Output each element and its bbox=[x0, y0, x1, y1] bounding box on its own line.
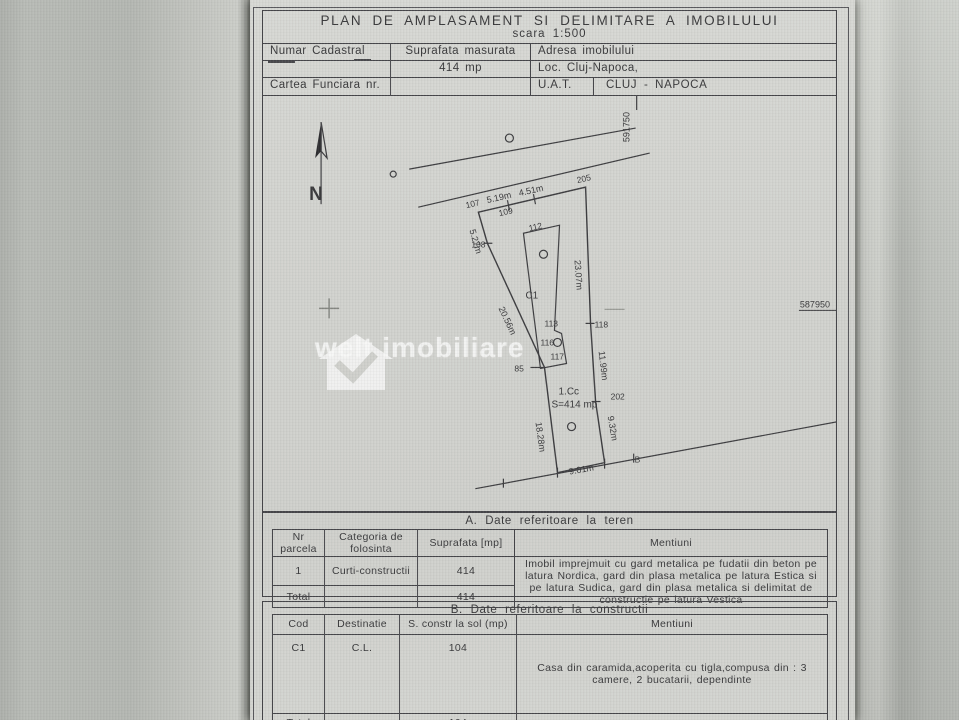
uat-value: CLUJ - NAPOCA bbox=[594, 78, 707, 95]
title-block: PLAN DE AMPLASAMENT SI DELIMITARE A IMOB… bbox=[262, 10, 837, 44]
svg-text:B: B bbox=[635, 455, 641, 465]
svg-text:116: 116 bbox=[540, 337, 554, 347]
svg-text:5.27m: 5.27m bbox=[467, 228, 484, 255]
north-label: N bbox=[309, 184, 323, 205]
uat-cell: U.A.T. CLUJ - NAPOCA bbox=[531, 78, 836, 95]
svg-text:109: 109 bbox=[498, 205, 514, 218]
cartea-funciara-label: Cartea Funciara nr. bbox=[263, 78, 391, 95]
svg-text:11.99m: 11.99m bbox=[597, 350, 611, 380]
cell-empty bbox=[517, 714, 828, 720]
svg-text:107: 107 bbox=[465, 197, 481, 210]
col-header: Destinatie bbox=[325, 615, 400, 635]
cartea-funciara-value bbox=[391, 78, 531, 95]
col-header: Nr parcela bbox=[273, 530, 325, 557]
svg-text:20.56m: 20.56m bbox=[497, 305, 519, 336]
survey-point-icon bbox=[568, 423, 576, 431]
col-header: Suprafata [mp] bbox=[418, 530, 515, 557]
col-header: Cod bbox=[273, 615, 325, 635]
info-table: Numar Cadastral Suprafata masurata Adres… bbox=[262, 43, 837, 96]
utility-point-icon bbox=[390, 171, 396, 177]
table-a-section: A. Date referitoare la teren Nr parcela … bbox=[262, 512, 837, 597]
photo-background-left bbox=[0, 0, 250, 720]
suprafata-label: Suprafata masurata bbox=[391, 44, 531, 61]
col-header: Mentiuni bbox=[515, 530, 828, 557]
scale-label: scara 1:500 bbox=[263, 28, 836, 40]
svg-text:112: 112 bbox=[528, 220, 544, 233]
table-b-section: B. Date referitoare la constructii Cod D… bbox=[262, 601, 837, 720]
road-line-bottom bbox=[475, 418, 836, 489]
svg-text:113: 113 bbox=[544, 318, 558, 328]
photo-background-right bbox=[855, 0, 959, 720]
svg-text:85: 85 bbox=[514, 363, 524, 373]
cell-cod: C1 bbox=[273, 635, 325, 714]
svg-text:205: 205 bbox=[576, 172, 592, 185]
table-a: Nr parcela Categoria de folosinta Supraf… bbox=[272, 529, 828, 608]
svg-text:23.07m: 23.07m bbox=[573, 260, 585, 291]
cell-suprafata: 414 bbox=[418, 557, 515, 586]
cadastral-plan-svg: 591750 587950 107 109 112 205 108 113 11… bbox=[263, 96, 836, 511]
col-header: Categoria de folosinta bbox=[325, 530, 418, 557]
road-line-1 bbox=[409, 128, 635, 169]
svg-text:4.51m: 4.51m bbox=[518, 183, 545, 198]
table-a-title: A. Date referitoare la teren bbox=[263, 513, 836, 527]
table-row: 1 Curti-constructii 414 Imobil imprejmui… bbox=[273, 557, 828, 586]
utility-point-icon bbox=[505, 134, 513, 142]
adresa-label: Adresa imobilului bbox=[531, 44, 836, 61]
numar-cadastral-value bbox=[263, 61, 391, 78]
coord-label-north: 591750 bbox=[622, 112, 632, 142]
dimension-labels: 5.19m 4.51m 5.27m 20.56m 18.28m 23.07m 1… bbox=[467, 183, 619, 477]
col-header: S. constr la sol (mp) bbox=[400, 615, 517, 635]
page-title: PLAN DE AMPLASAMENT SI DELIMITARE A IMOB… bbox=[263, 11, 836, 28]
svg-text:118: 118 bbox=[595, 319, 609, 329]
col-header: Mentiuni bbox=[517, 615, 828, 635]
survey-point-icon bbox=[553, 338, 561, 346]
document-sheet: PLAN DE AMPLASAMENT SI DELIMITARE A IMOB… bbox=[250, 0, 855, 720]
building-label: C1 bbox=[525, 290, 538, 301]
cell-suprafata: 104 bbox=[400, 635, 517, 714]
svg-text:117: 117 bbox=[550, 351, 564, 361]
suprafata-value: 414 mp bbox=[391, 61, 531, 78]
svg-text:18.28m: 18.28m bbox=[533, 421, 547, 452]
svg-text:9.32m: 9.32m bbox=[606, 415, 620, 441]
cell-total-value: 104 bbox=[400, 714, 517, 720]
cell-nr: 1 bbox=[273, 557, 325, 586]
numar-cadastral-label: Numar Cadastral bbox=[263, 44, 391, 61]
area-label: S=414 mp bbox=[551, 400, 597, 411]
svg-text:202: 202 bbox=[611, 392, 625, 402]
table-a-header-row: Nr parcela Categoria de folosinta Supraf… bbox=[273, 530, 828, 557]
cell-destinatie: C.L. bbox=[325, 635, 400, 714]
coord-label-east: 587950 bbox=[800, 299, 830, 309]
localitate-value: Loc. Cluj-Napoca, bbox=[531, 61, 836, 78]
cell-empty bbox=[325, 714, 400, 720]
table-b: Cod Destinatie S. constr la sol (mp) Men… bbox=[272, 614, 828, 720]
cell-total-label: Total bbox=[273, 714, 325, 720]
table-row-total: Total 104 bbox=[273, 714, 828, 720]
table-row: C1 C.L. 104 Casa din caramida,acoperita … bbox=[273, 635, 828, 714]
table-b-header-row: Cod Destinatie S. constr la sol (mp) Men… bbox=[273, 615, 828, 635]
cell-mentiuni: Casa din caramida,acoperita cu tigla,com… bbox=[517, 635, 828, 714]
pen-underline bbox=[354, 59, 371, 61]
uat-label: U.A.T. bbox=[531, 78, 594, 95]
plan-drawing-area: 591750 587950 107 109 112 205 108 113 11… bbox=[262, 95, 837, 512]
zone-label: 1.Cc bbox=[559, 387, 580, 398]
survey-point-icon bbox=[539, 250, 547, 258]
svg-text:9.01m: 9.01m bbox=[568, 462, 594, 476]
cell-categoria: Curti-constructii bbox=[325, 557, 418, 586]
pen-underline bbox=[268, 61, 295, 63]
grid-cross-icon bbox=[319, 298, 339, 318]
